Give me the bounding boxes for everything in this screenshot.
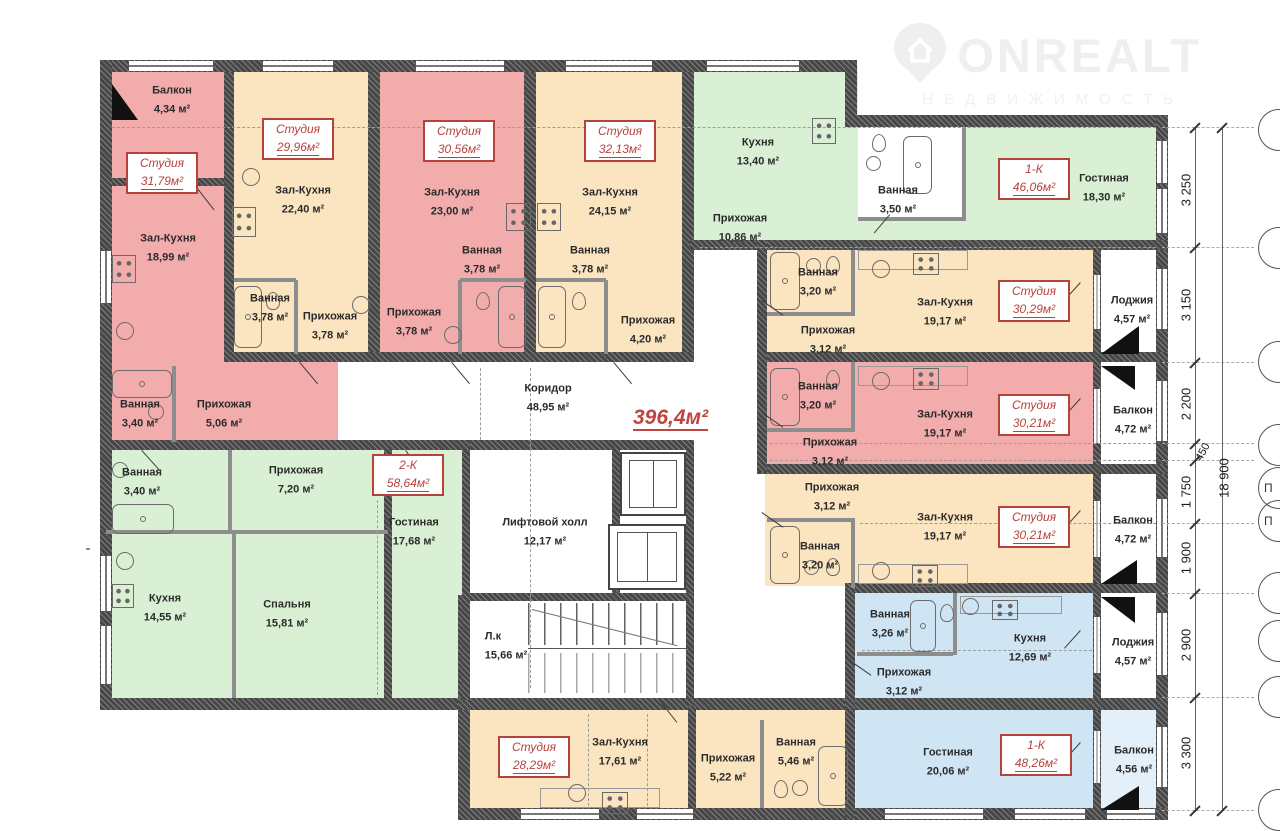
room-label: Балкон4,72 м² <box>1113 511 1153 548</box>
bathtub-icon <box>112 370 172 398</box>
bathtub-icon <box>538 286 566 348</box>
window <box>1157 498 1167 558</box>
sink-icon <box>872 260 890 278</box>
sink-icon <box>568 784 586 802</box>
room-label: Прихожая4,20 м² <box>621 311 675 348</box>
window <box>1094 388 1100 444</box>
room-label: Прихожая3,78 м² <box>303 307 357 344</box>
partition <box>232 534 236 698</box>
room-label: Зал-Кухня22,40 м² <box>275 181 331 218</box>
elevator-shaft <box>608 524 686 590</box>
unit-label-u3: Студия30,56м² <box>423 120 495 162</box>
sink-icon <box>866 156 881 171</box>
sink-icon <box>962 598 979 615</box>
extension-line <box>1162 593 1254 594</box>
axis-bubble <box>1258 424 1280 466</box>
partition <box>851 362 855 432</box>
elevator-icon <box>617 532 677 582</box>
stove-icon <box>912 565 938 587</box>
dim-label: 3 150 <box>1179 289 1194 322</box>
room-label: Гостиная17,68 м² <box>389 513 439 550</box>
stove-icon <box>232 207 256 237</box>
room-label: Зал-Кухня19,17 м² <box>917 293 973 330</box>
dim-label: 3 250 <box>1179 174 1194 207</box>
axis-bubble: П <box>1258 500 1280 542</box>
window <box>1106 809 1156 819</box>
unit-label-u10: Студия28,29м² <box>498 736 570 778</box>
partition <box>857 652 953 656</box>
window <box>1094 500 1100 558</box>
room-label: Зал-Кухня17,61 м² <box>592 733 648 770</box>
wall-rowDE <box>458 698 1168 710</box>
axis-bubble <box>1258 620 1280 662</box>
window <box>128 61 214 71</box>
unit-label-u2: Студия29,96м² <box>262 118 334 160</box>
room-label: Зал-Кухня24,15 м² <box>582 183 638 220</box>
sink-icon <box>872 372 890 390</box>
window <box>101 250 111 304</box>
wall-top-right <box>845 115 1168 127</box>
wall-lift-top <box>470 440 694 450</box>
dim-label: 3 300 <box>1179 737 1194 770</box>
room-label: Коридор48,95 м² <box>524 379 571 416</box>
wall-green-bottom <box>100 698 470 710</box>
axis-line <box>862 650 1092 651</box>
unit-label-u7: Студия30,21м² <box>998 394 1070 436</box>
room-label: Лифтовой холл12,17 м² <box>502 513 587 550</box>
room-label: Кухня13,40 м² <box>737 133 779 170</box>
unit-label-u6: Студия30,29м² <box>998 280 1070 322</box>
partition <box>767 518 855 522</box>
room-label: Лоджия4,57 м² <box>1112 633 1154 670</box>
logo-subtitle-text: НЕДВИЖИМОСТЬ <box>893 91 1202 108</box>
wall-u2-u3 <box>368 72 380 362</box>
window <box>636 809 694 819</box>
dim-total-label: 18 900 <box>1217 458 1232 498</box>
room-label: Зал-Кухня19,17 м² <box>917 508 973 545</box>
window <box>1157 188 1167 234</box>
bathtub-icon <box>770 526 800 584</box>
axis-bubble <box>1258 109 1280 151</box>
window <box>101 555 111 612</box>
window <box>706 61 800 71</box>
window <box>565 61 653 71</box>
dimension-line <box>1195 127 1196 810</box>
balcony-corner-mark <box>1101 366 1135 390</box>
logo-brand-text: ONREALT <box>957 28 1202 83</box>
toilet-icon <box>476 292 490 310</box>
room-label: Ванная3,78 м² <box>250 289 290 326</box>
stove-icon <box>112 255 136 283</box>
room-label: Ванная3,20 м² <box>800 537 840 574</box>
window <box>520 809 600 819</box>
window <box>1094 274 1100 330</box>
partition <box>851 250 855 316</box>
wall-rowCD <box>845 583 1168 593</box>
unit-label-u5: 1-К46,06м² <box>998 158 1070 200</box>
room-label: Зал-Кухня18,99 м² <box>140 229 196 266</box>
unit-label-u4: Студия32,13м² <box>584 120 656 162</box>
window <box>1014 809 1086 819</box>
door <box>451 362 470 384</box>
sink-icon <box>116 322 134 340</box>
logo-pin-icon <box>893 22 947 89</box>
window <box>1094 616 1100 674</box>
extension-line <box>1162 127 1254 128</box>
axis-line <box>700 247 1156 248</box>
extension-line <box>1162 460 1254 461</box>
partition <box>953 593 957 655</box>
room-label: Ванная3,26 м² <box>870 605 910 642</box>
unit-label-u1: Студия31,79м² <box>126 152 198 194</box>
room-label: Ванная3,40 м² <box>120 395 160 432</box>
partition <box>458 280 462 354</box>
room-label: Прихожая10,86 м² <box>713 209 767 246</box>
extension-line <box>1162 697 1254 698</box>
extension-line <box>1162 247 1254 248</box>
stair-flight-upper <box>528 603 688 645</box>
sink-icon <box>444 326 462 344</box>
room-label: Ванная3,20 м² <box>798 377 838 414</box>
unit-label-u11: 1-К48,26м² <box>1000 734 1072 776</box>
room-label: Лоджия4,57 м² <box>1111 291 1153 328</box>
stove-icon <box>913 368 939 390</box>
partition <box>851 518 855 588</box>
room-label: Прихожая3,12 м² <box>877 663 931 700</box>
axis-line <box>377 500 378 695</box>
room-label: Балкон4,72 м² <box>1113 401 1153 438</box>
wall-u9-top <box>100 440 470 450</box>
stair-divider <box>528 648 688 649</box>
stove-icon <box>602 792 628 814</box>
window <box>1157 612 1167 676</box>
room-label: Кухня12,69 м² <box>1009 629 1051 666</box>
wall-lift-west <box>462 450 470 700</box>
room-label: Прихожая5,06 м² <box>197 395 251 432</box>
staircase <box>528 601 688 695</box>
window <box>262 61 334 71</box>
dim-label: 2 900 <box>1179 629 1194 662</box>
window <box>1157 380 1167 442</box>
wall-step <box>845 60 857 127</box>
room-label: Гостиная18,30 м² <box>1079 169 1129 206</box>
stove-icon <box>992 600 1018 620</box>
onrealt-logo: ONREALT НЕДВИЖИМОСТЬ <box>893 22 1202 108</box>
unit-label-u8: Студия30,21м² <box>998 506 1070 548</box>
wall-corridor-east <box>757 240 767 472</box>
room-label: Балкон4,34 м² <box>152 81 192 118</box>
room-label: Ванная3,20 м² <box>798 263 838 300</box>
wall-corridor-north <box>230 352 694 362</box>
toilet-icon <box>572 292 586 310</box>
toilet-icon <box>774 780 788 798</box>
partition <box>234 278 296 282</box>
extension-line <box>1162 362 1254 363</box>
room-label: Прихожая3,78 м² <box>387 303 441 340</box>
stair-flight-lower <box>528 653 688 693</box>
window <box>1157 268 1167 330</box>
loggia-corner-mark <box>1101 597 1135 623</box>
room-label: Л.к15,66 м² <box>485 627 527 664</box>
dim-label: 1 900 <box>1179 542 1194 575</box>
window <box>884 809 984 819</box>
dim-label: 1 750 <box>1179 476 1194 509</box>
unit-label-u9: 2-К58,64м² <box>372 454 444 496</box>
axis-line <box>480 368 481 440</box>
partition <box>767 428 855 432</box>
door <box>613 362 632 384</box>
elevator-icon <box>629 460 677 508</box>
total-area-label: 396,4м² <box>633 406 708 431</box>
bathtub-icon <box>770 368 800 426</box>
extension-line <box>1162 810 1254 811</box>
window <box>101 625 111 685</box>
toilet-icon <box>872 134 886 152</box>
room-label: Ванная3,78 м² <box>570 241 610 278</box>
room-label: Зал-Кухня23,00 м² <box>424 183 480 220</box>
kitchen-counter <box>540 788 660 808</box>
bathtub-icon <box>818 746 848 806</box>
extension-line <box>1162 523 1254 524</box>
room-label: Прихожая7,20 м² <box>269 461 323 498</box>
elevator-shaft <box>620 452 686 516</box>
sink-icon <box>88 548 90 550</box>
room-label: Прихожая3,12 м² <box>805 478 859 515</box>
room-label: Ванная3,78 м² <box>462 241 502 278</box>
room-label: Гостиная20,06 м² <box>923 743 973 780</box>
window <box>1157 726 1167 788</box>
axis-bubble <box>1258 789 1280 831</box>
stove-icon <box>112 584 134 608</box>
axis-bubble <box>1258 341 1280 383</box>
room-label: Ванная3,50 м² <box>878 181 918 218</box>
balcony-corner-mark <box>1101 560 1137 584</box>
stove-icon <box>506 203 531 231</box>
axis-bubble <box>1258 572 1280 614</box>
stove-icon <box>537 203 561 231</box>
partition <box>172 366 176 442</box>
bathtub-icon <box>770 252 800 310</box>
toilet-icon <box>940 604 954 622</box>
wall-left <box>100 60 112 710</box>
window <box>415 61 505 71</box>
window <box>1094 730 1100 784</box>
room-label: Прихожая3,12 м² <box>801 321 855 358</box>
partition <box>760 720 764 808</box>
stove-icon <box>913 253 939 275</box>
dim-label: 2 200 <box>1179 388 1194 421</box>
partition <box>962 127 966 219</box>
axis-bubble <box>1258 227 1280 269</box>
sink-icon <box>792 780 808 796</box>
sink-icon <box>872 562 890 580</box>
wall-stair-top <box>470 593 694 601</box>
sink-icon <box>242 168 260 186</box>
partition <box>604 280 608 354</box>
wall-u10-entry <box>688 706 696 808</box>
partition <box>294 280 298 354</box>
room-label: Спальня15,81 м² <box>263 595 311 632</box>
bathtub-icon <box>498 286 526 348</box>
bathtub-icon <box>112 504 174 534</box>
room-label: Зал-Кухня19,17 м² <box>917 405 973 442</box>
window <box>1157 140 1167 184</box>
room-label: Ванная5,46 м² <box>776 733 816 770</box>
stove-icon <box>812 118 836 144</box>
wall-u4-u5 <box>682 72 694 352</box>
loggia-corner-mark <box>1101 326 1139 354</box>
floorplan-page: { "logo": { "brand": "ONREALT", "subtitl… <box>0 0 1280 824</box>
axis-bubble <box>1258 676 1280 718</box>
bathtub-icon <box>910 600 936 652</box>
room-label: Кухня14,55 м² <box>144 589 186 626</box>
room-label: Ванная3,40 м² <box>122 463 162 500</box>
room-label: Прихожая3,12 м² <box>803 433 857 470</box>
partition <box>228 450 232 530</box>
room-label: Балкон4,56 м² <box>1114 741 1154 778</box>
room-label: Прихожая5,22 м² <box>701 749 755 786</box>
sink-icon <box>116 552 134 570</box>
